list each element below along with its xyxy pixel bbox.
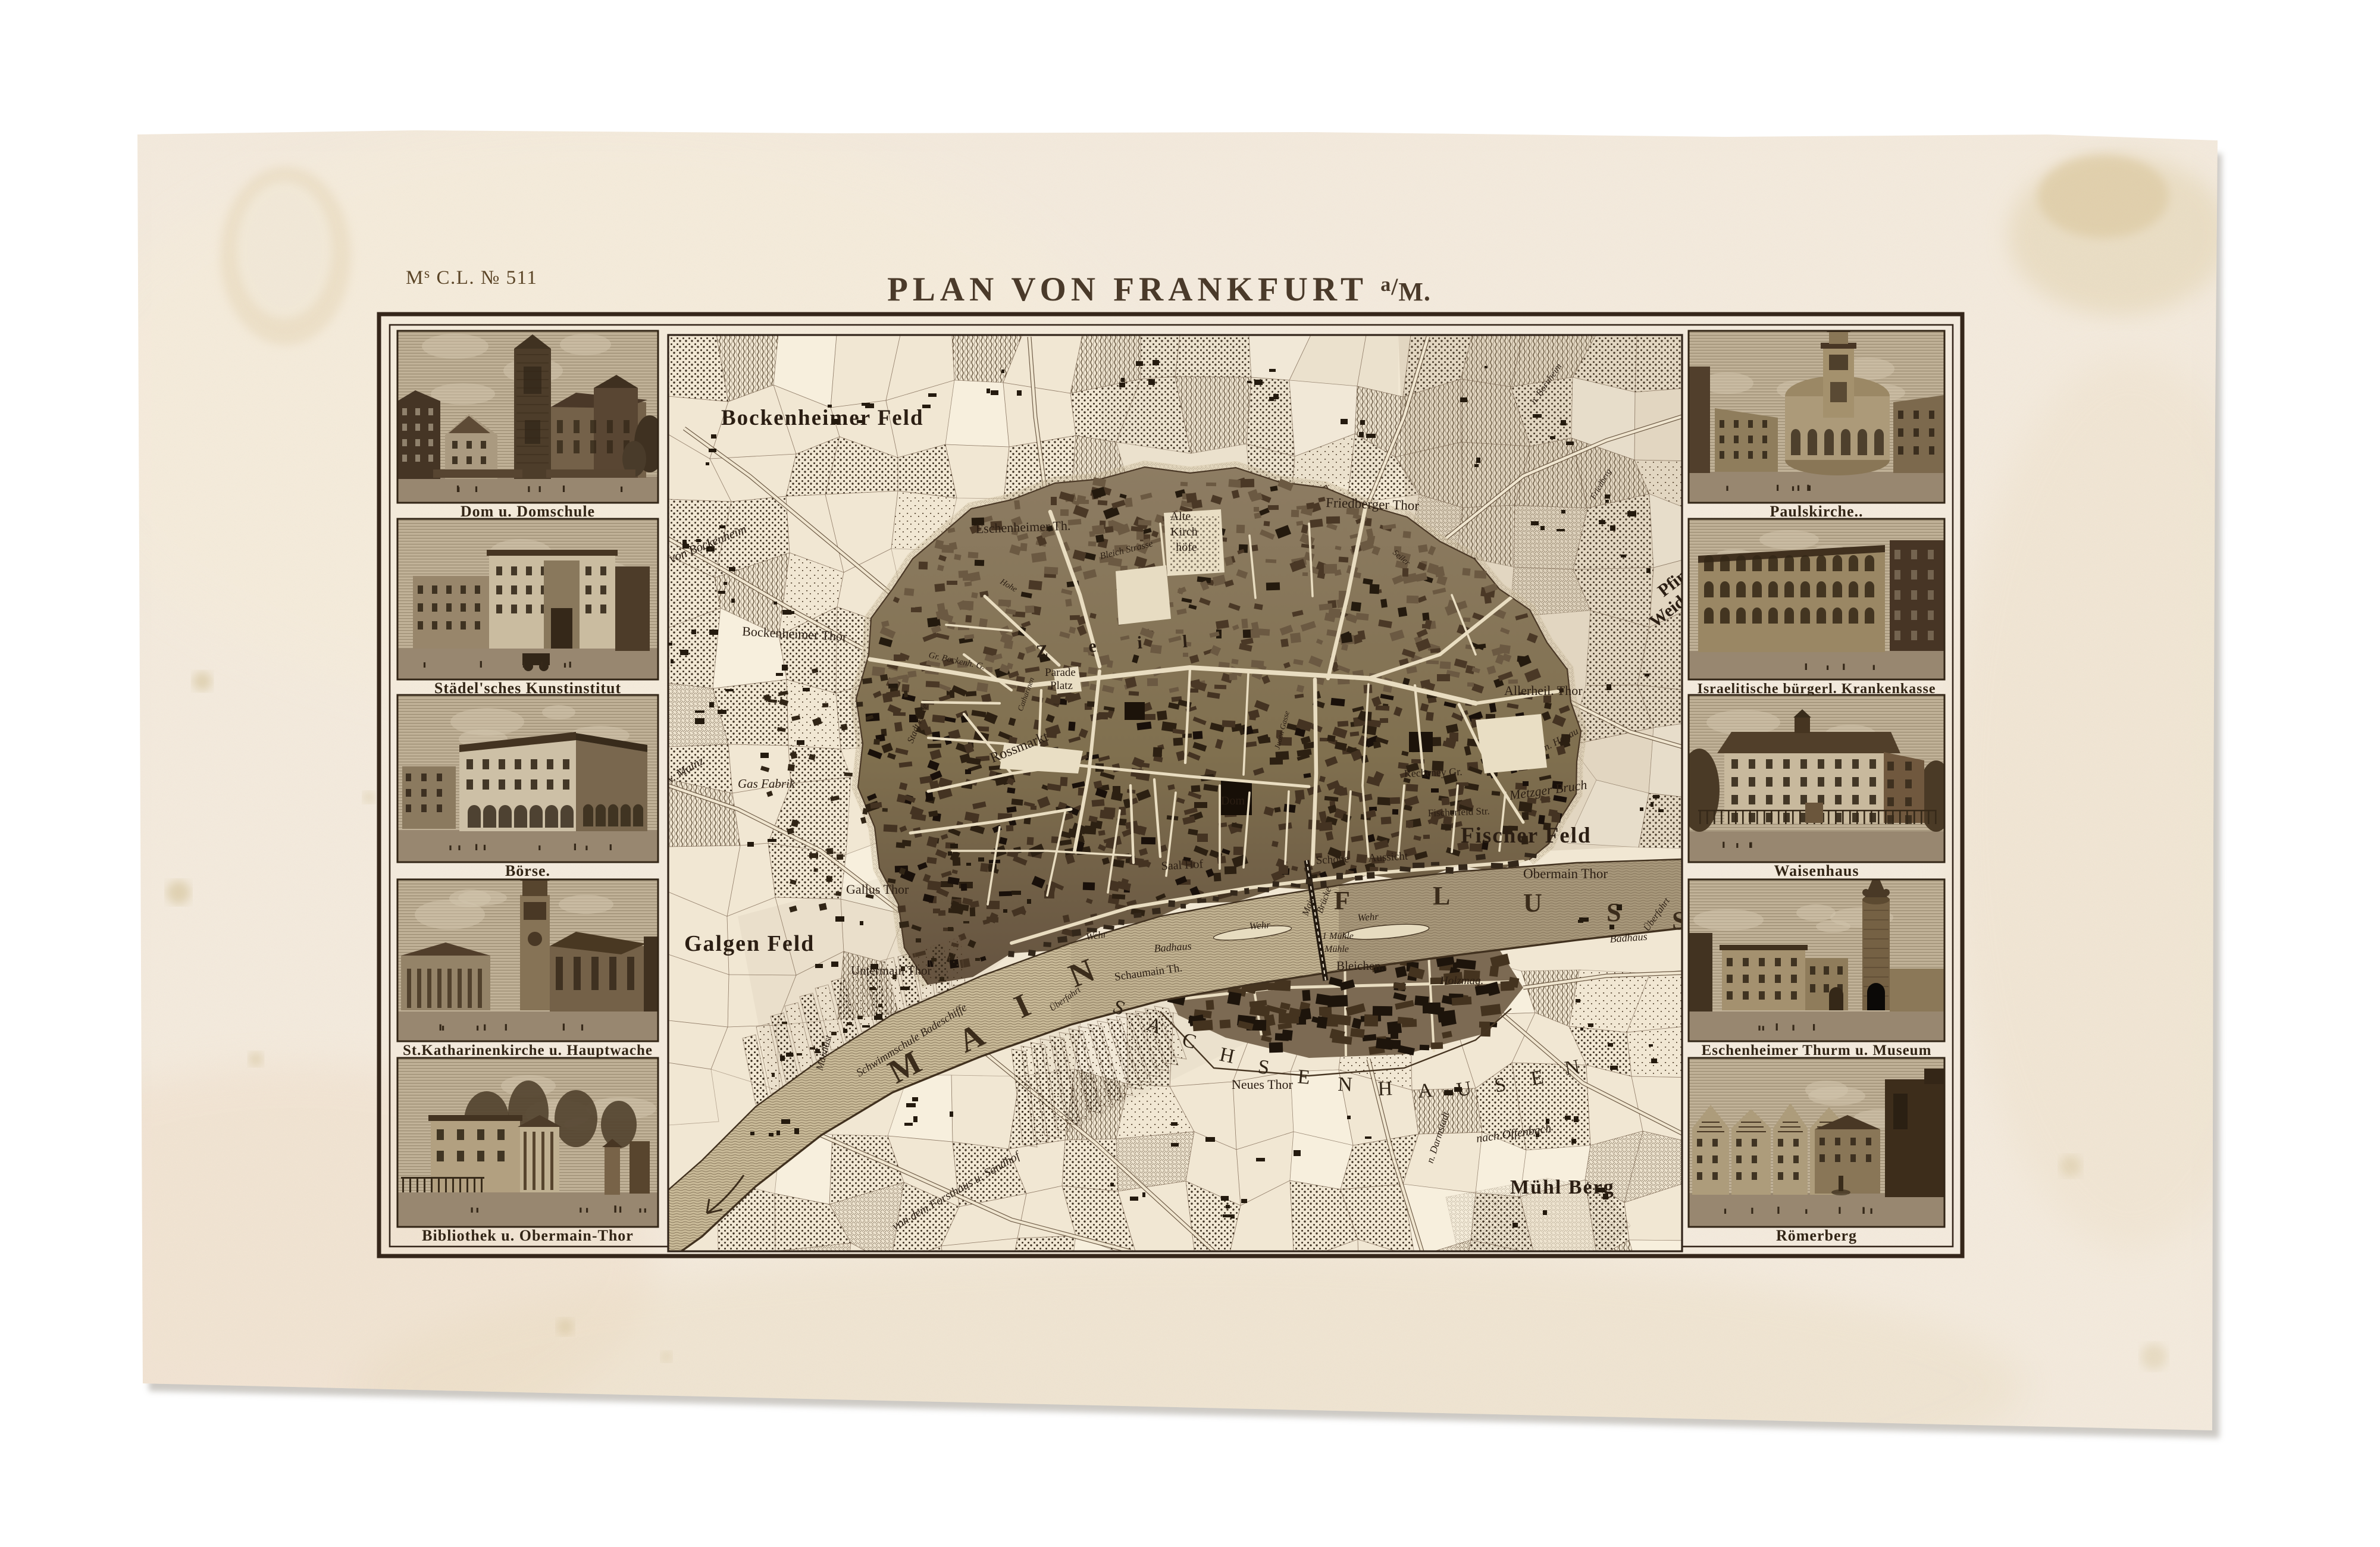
svg-text:Dom u. Domschule: Dom u. Domschule	[461, 503, 595, 520]
svg-text:Wehr: Wehr	[1249, 919, 1271, 932]
svg-text:Wehr: Wehr	[1357, 911, 1379, 923]
svg-text:Parade: Parade	[1045, 666, 1076, 679]
svg-text:Römerberg: Römerberg	[1776, 1227, 1857, 1244]
svg-text:PLAN VON FRANKFURT a/M.: PLAN VON FRANKFURT a/M.	[887, 271, 1431, 308]
svg-text:e: e	[1088, 636, 1097, 656]
svg-text:Börse.: Börse.	[505, 862, 550, 879]
svg-text:Platz: Platz	[1050, 679, 1073, 692]
svg-text:Z: Z	[1035, 641, 1048, 662]
svg-text:U: U	[1523, 888, 1542, 917]
svg-text:L: L	[1433, 881, 1450, 910]
svg-text:Untermain Thor: Untermain Thor	[851, 963, 932, 978]
svg-text:Fischerfeld Str.: Fischerfeld Str.	[1427, 805, 1489, 819]
svg-text:Saal Hof: Saal Hof	[1161, 857, 1204, 873]
svg-text:Alte: Alte	[1170, 510, 1191, 523]
svg-text:Paulskirche..: Paulskirche..	[1770, 503, 1864, 520]
svg-text:Allerheil. Thor: Allerheil. Thor	[1504, 683, 1583, 698]
svg-text:Aussicht: Aussicht	[1368, 850, 1408, 865]
svg-text:Fischer Feld: Fischer Feld	[1461, 823, 1592, 848]
svg-text:Schöne: Schöne	[1316, 853, 1349, 867]
svg-text:höfe: höfe	[1176, 541, 1197, 554]
svg-text:H: H	[1377, 1078, 1393, 1100]
svg-text:E: E	[1297, 1066, 1311, 1089]
svg-text:Recheney Gr.: Recheney Gr.	[1404, 766, 1463, 779]
svg-text:1 Mühle: 1 Mühle	[1322, 931, 1354, 941]
svg-text:Mühle: Mühle	[1324, 944, 1349, 954]
svg-text:Bockenheimer Feld: Bockenheimer Feld	[721, 406, 924, 430]
svg-text:N: N	[1338, 1073, 1353, 1096]
svg-text:Neues Thor: Neues Thor	[1232, 1077, 1294, 1092]
svg-text:St.Katharinenkirche u. Hauptwa: St.Katharinenkirche u. Hauptwache	[403, 1042, 653, 1059]
svg-text:S: S	[1606, 898, 1621, 927]
svg-text:Holzmag.: Holzmag.	[1439, 975, 1483, 987]
svg-text:A: A	[1417, 1079, 1433, 1103]
svg-text:Bibliothek u. Obermain-Thor: Bibliothek u. Obermain-Thor	[422, 1227, 634, 1244]
svg-text:Kirch: Kirch	[1170, 525, 1198, 538]
svg-text:Mühl Berg: Mühl Berg	[1510, 1176, 1615, 1198]
svg-text:Bleichen.: Bleichen.	[1336, 959, 1384, 973]
svg-text:Galgen Feld: Galgen Feld	[684, 931, 815, 956]
svg-text:Waisenhaus: Waisenhaus	[1774, 862, 1859, 879]
svg-text:Obermain Thor: Obermain Thor	[1523, 866, 1608, 881]
svg-text:Eschenheimer Thurm u. Museum: Eschenheimer Thurm u. Museum	[1702, 1042, 1932, 1059]
svg-text:Gallus Thor: Gallus Thor	[846, 882, 909, 897]
svg-text:Dom: Dom	[1221, 794, 1245, 807]
svg-text:F: F	[1334, 886, 1350, 915]
svg-text:Gas Fabrik: Gas Fabrik	[738, 776, 796, 791]
